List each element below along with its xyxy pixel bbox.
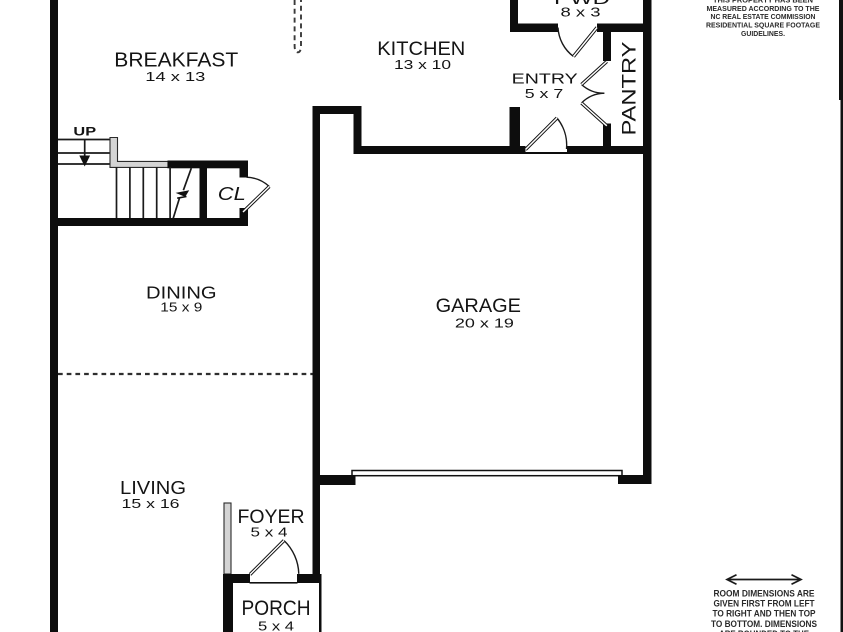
svg-text:UP: UP <box>73 127 96 139</box>
svg-text:8 x 3: 8 x 3 <box>561 4 601 19</box>
svg-text:PORCH: PORCH <box>242 597 311 620</box>
svg-text:ROOM DIMENSIONS ARE: ROOM DIMENSIONS ARE <box>714 588 815 598</box>
svg-text:GARAGE: GARAGE <box>436 296 521 317</box>
svg-text:GIVEN FIRST FROM LEFT: GIVEN FIRST FROM LEFT <box>714 599 815 609</box>
svg-text:TO BOTTOM. DIMENSIONS: TO BOTTOM. DIMENSIONS <box>711 619 817 629</box>
svg-text:15 x 9: 15 x 9 <box>160 300 202 315</box>
svg-text:14 x 13: 14 x 13 <box>145 69 205 84</box>
svg-text:ENTRY: ENTRY <box>512 72 578 88</box>
svg-text:GUIDELINES.: GUIDELINES. <box>741 29 785 38</box>
svg-text:20 x 19: 20 x 19 <box>455 316 514 331</box>
svg-text:PANTRY: PANTRY <box>620 41 641 135</box>
svg-text:5 x 4: 5 x 4 <box>258 618 294 632</box>
svg-text:TO RIGHT AND THEN TOP: TO RIGHT AND THEN TOP <box>713 609 816 619</box>
svg-text:CL: CL <box>218 184 246 204</box>
svg-text:13 x 10: 13 x 10 <box>394 57 451 72</box>
svg-text:15 x 16: 15 x 16 <box>122 496 180 511</box>
svg-text:5 x 7: 5 x 7 <box>525 86 564 101</box>
svg-text:LIVING: LIVING <box>120 477 186 498</box>
svg-text:5 x 4: 5 x 4 <box>251 525 288 540</box>
